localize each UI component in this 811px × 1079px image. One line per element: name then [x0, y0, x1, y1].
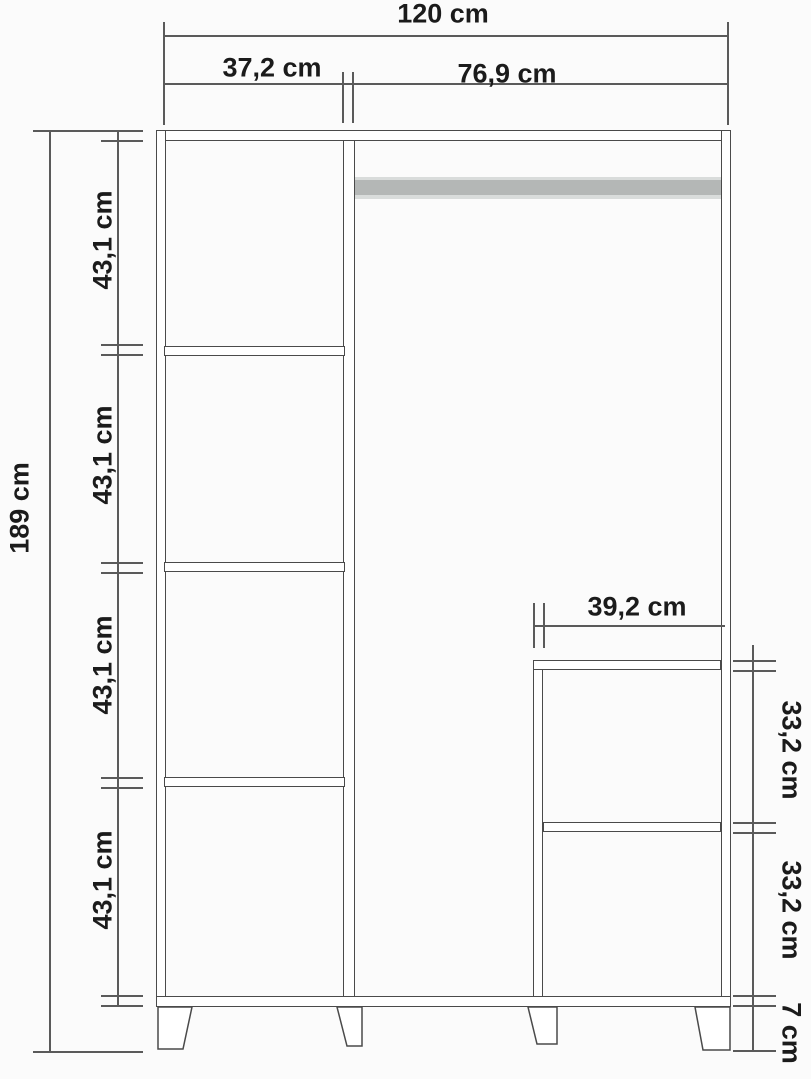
- dimension-line-compartment-width: [533, 625, 725, 627]
- tick-bottom-a: [101, 995, 143, 997]
- wardrobe-feet: [0, 0, 811, 1079]
- tick-compartment-b: [543, 603, 545, 648]
- tick-shelf1-b: [101, 354, 143, 356]
- tick-comp-bottom-a: [733, 995, 776, 997]
- label-compartment-spacing-2: 33,2 cm: [778, 860, 805, 959]
- label-right-opening-width: 76,9 cm: [457, 61, 556, 88]
- tick-shelf1-a: [101, 344, 143, 346]
- foot-center-right: [528, 1007, 557, 1044]
- dimension-line-total-height: [49, 130, 51, 1052]
- label-total-height: 189 cm: [7, 462, 34, 554]
- tick-shelf3-b: [101, 787, 143, 789]
- foot-outer-left: [158, 1007, 192, 1049]
- tick-comp-bottom-b: [733, 1005, 776, 1007]
- foot-center-left: [337, 1007, 362, 1046]
- label-shelf-spacing-2: 43,1 cm: [90, 405, 117, 504]
- dimension-line-section-widths: [163, 83, 727, 85]
- tick-top-long: [33, 130, 143, 132]
- label-compartment-spacing-1: 33,2 cm: [778, 700, 805, 799]
- tick-comp-mid-b: [733, 832, 776, 834]
- tick-bottom-b: [101, 1005, 143, 1007]
- label-compartment-width: 39,2 cm: [587, 594, 686, 621]
- tick-comp-top-b: [733, 670, 776, 672]
- tick-compartment-a: [533, 603, 535, 648]
- tick-comp-top-a: [733, 660, 776, 662]
- tick-comp-mid-a: [733, 822, 776, 824]
- label-shelf-spacing-1: 43,1 cm: [90, 190, 117, 289]
- tick-floor-long: [33, 1051, 143, 1053]
- tick-top-short: [101, 140, 143, 142]
- dimension-line-compartment-heights: [752, 645, 754, 1052]
- tick-shelf2-a: [101, 562, 143, 564]
- label-foot-height: 7 cm: [778, 1002, 805, 1064]
- wardrobe-dimension-diagram: 120 cm 37,2 cm 76,9 cm 189 cm 43,1 cm 43…: [0, 0, 811, 1079]
- tick-shelf3-a: [101, 777, 143, 779]
- tick-divider-b: [352, 72, 354, 123]
- label-shelf-spacing-3: 43,1 cm: [90, 615, 117, 714]
- extension-line-left: [163, 22, 165, 125]
- label-shelf-spacing-4: 43,1 cm: [90, 830, 117, 929]
- extension-line-right: [727, 22, 729, 125]
- tick-divider-a: [342, 72, 344, 123]
- tick-shelf2-b: [101, 572, 143, 574]
- foot-outer-right: [695, 1007, 730, 1050]
- label-left-column-width: 37,2 cm: [222, 55, 321, 82]
- tick-comp-floor: [733, 1050, 776, 1052]
- dimension-line-total-width: [163, 35, 727, 37]
- label-total-width: 120 cm: [397, 1, 489, 28]
